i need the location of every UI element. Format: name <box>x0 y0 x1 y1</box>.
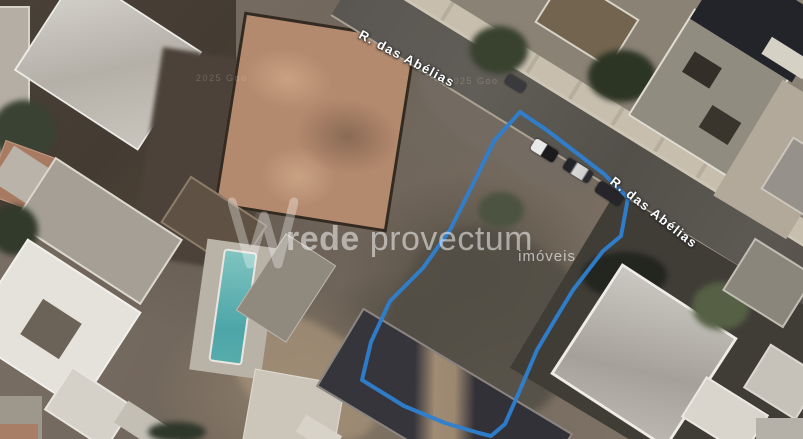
watermark-subtitle: imóveis <box>430 248 576 265</box>
property-outline <box>362 112 628 436</box>
satellite-map-viewport[interactable]: 2025 Goo 2025 Goo R. das Abélias R. das … <box>0 0 803 439</box>
watermark-brand-bold: rede <box>286 220 360 258</box>
